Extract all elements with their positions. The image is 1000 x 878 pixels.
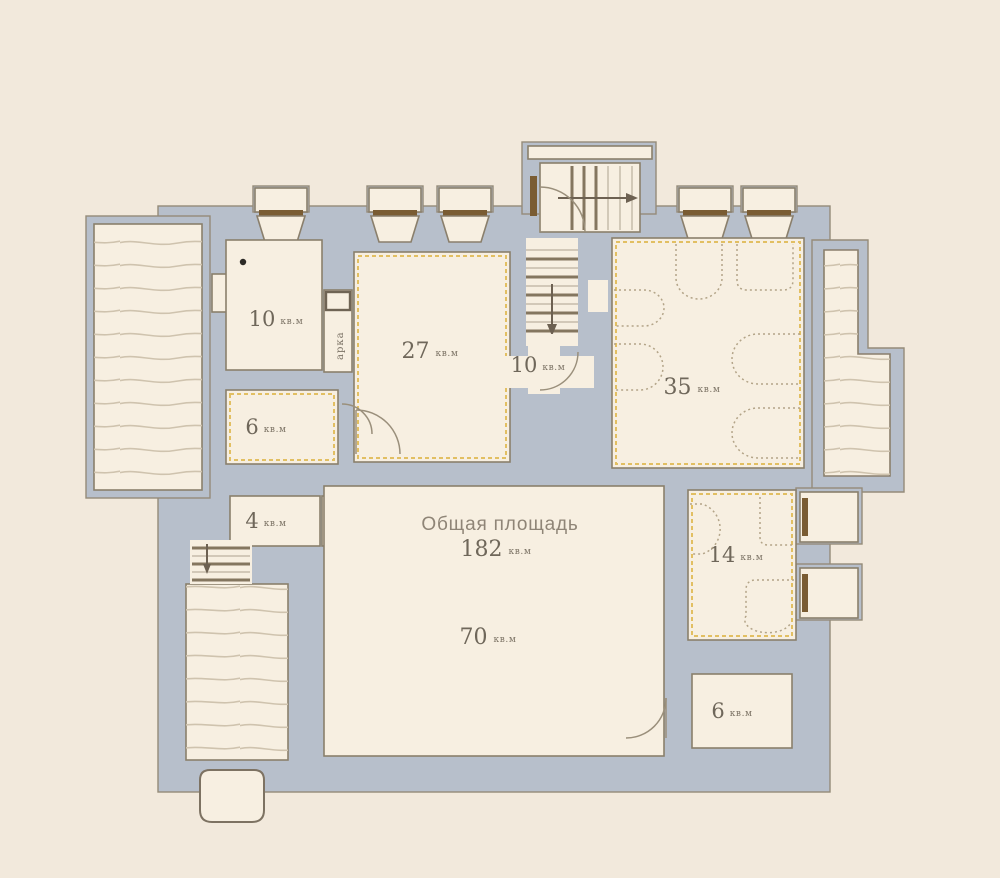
total-area-title: Общая площадь <box>421 514 578 535</box>
duct-box <box>326 292 350 310</box>
room-top-left: 10кв.м <box>212 240 322 370</box>
room-14: 14кв.м <box>688 490 796 640</box>
room-shape <box>226 240 322 370</box>
arch-label: арка <box>335 331 346 360</box>
bay-window <box>255 188 307 242</box>
terrace-right-hatch <box>824 250 890 476</box>
floor-plan-page: 10кв.м арка 27кв.м 10кв.м <box>0 0 1000 878</box>
stair-niche <box>588 280 608 312</box>
bay-window <box>743 188 795 242</box>
room-shape <box>688 490 796 640</box>
room-70: Общая площадь 182кв.м 70кв.м <box>324 486 664 756</box>
floor-plan: 10кв.м арка 27кв.м 10кв.м <box>0 0 1000 878</box>
bay-window <box>800 492 858 542</box>
entry-canopy <box>528 146 652 159</box>
bay-window <box>369 188 421 242</box>
entry-window-frame <box>530 176 537 216</box>
arch-shaft: арка <box>324 290 352 372</box>
bay-window <box>679 188 731 242</box>
bay-window <box>439 188 491 242</box>
bay-window <box>800 568 858 618</box>
room-shape <box>612 238 804 468</box>
bottom-left-stairs <box>190 540 252 584</box>
point-marker <box>240 259 246 265</box>
terrace-bottom-left-hatch <box>186 584 288 760</box>
room-27: 27кв.м <box>354 252 510 462</box>
room-4: 4кв.м <box>230 496 320 546</box>
entry <box>528 146 652 232</box>
room-35: 35кв.м <box>612 238 804 468</box>
room-shape <box>354 252 510 462</box>
porch <box>200 770 264 822</box>
terrace-top-left-hatch <box>94 224 202 490</box>
porch-shape <box>200 770 264 822</box>
